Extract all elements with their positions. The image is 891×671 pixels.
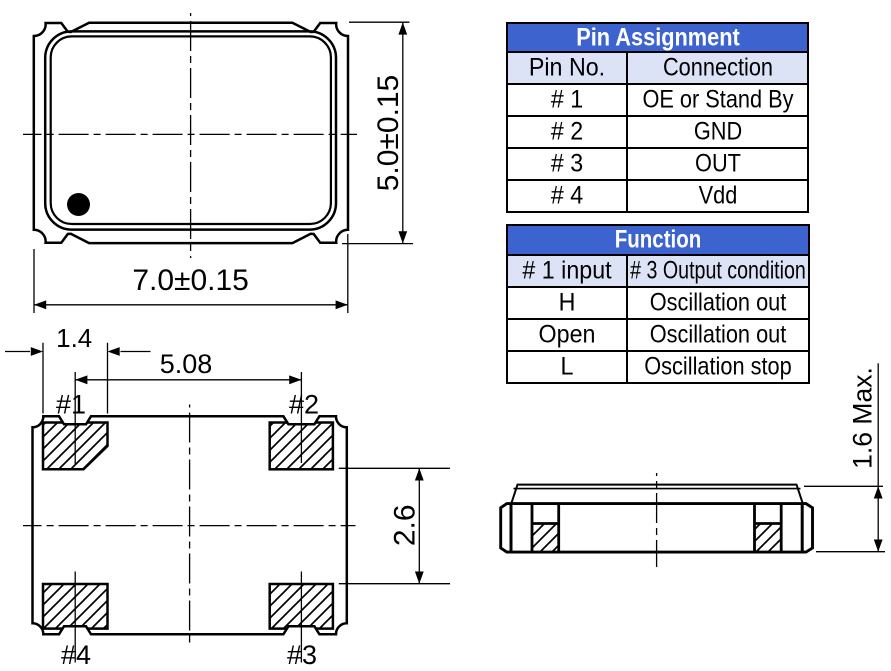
svg-text:5.0±0.15: 5.0±0.15: [372, 75, 405, 192]
svg-text:#3: #3: [287, 640, 317, 670]
svg-text:1.6 Max.: 1.6 Max.: [848, 367, 878, 469]
svg-text:5.08: 5.08: [160, 349, 213, 379]
svg-text:2.6: 2.6: [389, 504, 422, 546]
svg-text:1.4: 1.4: [56, 323, 92, 353]
svg-text:#4: #4: [61, 640, 91, 670]
svg-text:#2: #2: [289, 390, 319, 420]
svg-text:#1: #1: [56, 390, 86, 420]
svg-text:7.0±0.15: 7.0±0.15: [132, 264, 249, 297]
